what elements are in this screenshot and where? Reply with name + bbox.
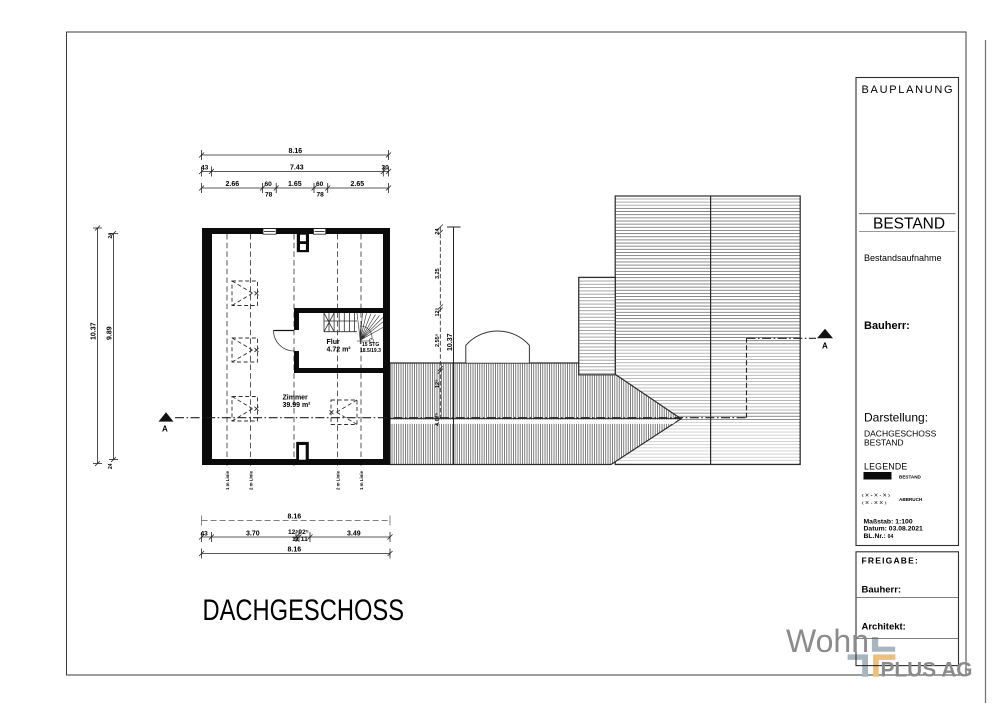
svg-text:Wohn: Wohn <box>786 623 869 659</box>
svg-text:10.37: 10.37 <box>447 333 454 351</box>
svg-text:43: 43 <box>201 164 209 171</box>
svg-text:BESTAND: BESTAND <box>864 438 904 448</box>
svg-text:2.55⁵: 2.55⁵ <box>435 333 441 347</box>
svg-text:78: 78 <box>265 192 273 199</box>
svg-text:DACHGESCHOSS: DACHGESCHOSS <box>203 594 405 627</box>
svg-text:11 11: 11 11 <box>292 536 308 543</box>
svg-text:30: 30 <box>382 164 390 171</box>
svg-text:1 m Linie: 1 m Linie <box>359 470 364 490</box>
svg-text:7.43: 7.43 <box>290 164 304 171</box>
svg-text:A: A <box>822 342 828 351</box>
svg-text:Darstellung:: Darstellung: <box>864 411 928 425</box>
svg-text:Bauherr:: Bauherr: <box>864 320 910 332</box>
svg-text:12⁵92⁵: 12⁵92⁵ <box>288 529 309 536</box>
svg-text:Flur: Flur <box>327 339 340 346</box>
svg-text:60: 60 <box>265 181 273 188</box>
svg-text:PLUS AG: PLUS AG <box>881 659 973 682</box>
svg-text:8.16: 8.16 <box>288 513 302 520</box>
svg-text:ABBRUCH: ABBRUCH <box>899 497 923 502</box>
svg-text:24: 24 <box>108 463 114 469</box>
svg-text:Bauherr:: Bauherr: <box>862 585 902 596</box>
svg-text:4.07⁵: 4.07⁵ <box>435 412 441 426</box>
svg-text:Bestandsaufnahme: Bestandsaufnahme <box>864 253 942 263</box>
svg-text:Zimmer: Zimmer <box>283 395 309 402</box>
svg-text:FREIGABE:: FREIGABE: <box>862 556 920 566</box>
svg-text:43: 43 <box>201 530 209 537</box>
svg-text:BAUPLANUNG: BAUPLANUNG <box>862 84 955 96</box>
svg-text:3.49: 3.49 <box>347 530 361 537</box>
svg-text:4.72 m²: 4.72 m² <box>327 347 352 354</box>
svg-text:3.70: 3.70 <box>246 530 260 537</box>
svg-text:39.99 m²: 39.99 m² <box>283 402 312 409</box>
svg-text:A: A <box>162 425 168 434</box>
svg-text:3.25: 3.25 <box>435 268 441 279</box>
svg-text:24: 24 <box>435 227 441 234</box>
svg-text:2.66: 2.66 <box>226 181 240 188</box>
svg-text:1.65: 1.65 <box>288 181 302 188</box>
svg-text:78: 78 <box>317 192 325 199</box>
svg-text:12⁵: 12⁵ <box>435 307 441 316</box>
svg-text:BESTAND: BESTAND <box>899 475 922 480</box>
svg-text:12⁵: 12⁵ <box>435 379 441 388</box>
svg-text:2 m Linie: 2 m Linie <box>336 470 341 490</box>
svg-text:2.65: 2.65 <box>351 181 365 188</box>
svg-text:Maßstab: 1:100: Maßstab: 1:100 <box>864 519 913 526</box>
svg-text:10.37: 10.37 <box>91 322 98 340</box>
svg-text:8.16: 8.16 <box>288 546 302 553</box>
svg-text:24: 24 <box>108 233 114 239</box>
svg-text:8.16: 8.16 <box>289 148 303 155</box>
svg-text:‹×-×·×›: ‹×-×·×› <box>862 493 892 500</box>
svg-text:2 m Linie: 2 m Linie <box>249 470 254 490</box>
svg-text:BL.Nr.: 04: BL.Nr.: 04 <box>864 533 894 540</box>
svg-text:Datum: 03.08.2021: Datum: 03.08.2021 <box>864 526 924 533</box>
svg-text:LEGENDE: LEGENDE <box>864 462 907 472</box>
svg-text:18.5/19.3: 18.5/19.3 <box>360 348 381 354</box>
svg-text:‹×·××›: ‹×·××› <box>862 500 888 507</box>
svg-text:1 m Linie: 1 m Linie <box>225 470 230 490</box>
svg-text:60: 60 <box>316 181 324 188</box>
svg-text:BESTAND: BESTAND <box>873 216 945 233</box>
svg-text:9.89: 9.89 <box>107 326 114 340</box>
